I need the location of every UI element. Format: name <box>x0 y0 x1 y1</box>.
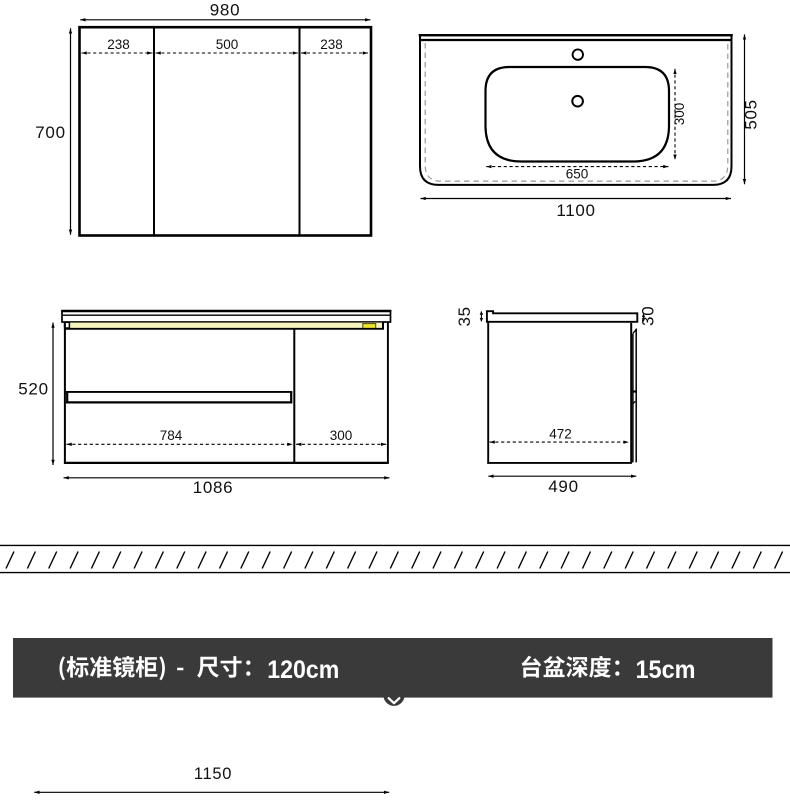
svg-text:980: 980 <box>210 0 240 19</box>
svg-text:500: 500 <box>216 37 239 52</box>
svg-text:120cm: 120cm <box>267 656 339 684</box>
svg-text:472: 472 <box>549 427 572 442</box>
svg-text:238: 238 <box>107 37 130 52</box>
svg-text:30: 30 <box>638 306 657 326</box>
svg-text:15cm: 15cm <box>636 656 696 684</box>
svg-text:520: 520 <box>18 380 48 399</box>
svg-text:238: 238 <box>320 37 343 52</box>
svg-text:700: 700 <box>35 123 65 142</box>
svg-text:650: 650 <box>566 166 589 181</box>
svg-text:1086: 1086 <box>193 478 234 497</box>
svg-text:1100: 1100 <box>556 201 595 220</box>
svg-text:300: 300 <box>672 103 687 126</box>
svg-text:784: 784 <box>160 428 183 443</box>
svg-text:35: 35 <box>455 306 474 326</box>
svg-text:505: 505 <box>742 99 761 129</box>
svg-text:1150: 1150 <box>194 765 232 783</box>
svg-text:300: 300 <box>330 428 353 443</box>
svg-text:490: 490 <box>548 477 578 496</box>
